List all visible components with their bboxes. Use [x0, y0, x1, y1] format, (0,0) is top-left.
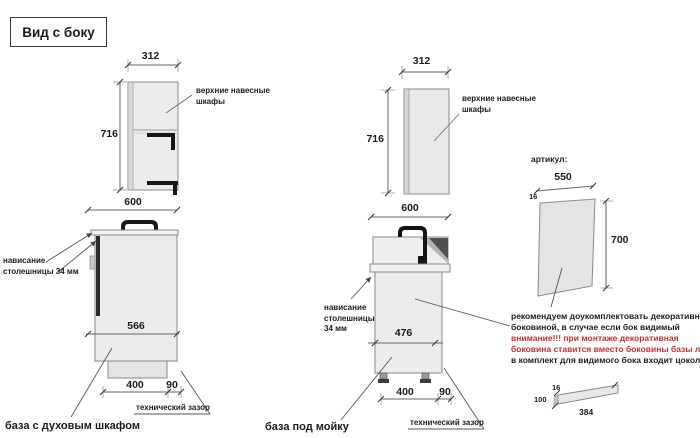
note-techgap-left: технический зазор: [136, 403, 212, 414]
dim-thickness-plinth: 16: [552, 383, 560, 392]
leg-left: [380, 373, 387, 379]
bracket-top: [171, 133, 175, 150]
dim-gap-base-sink: 90: [431, 386, 459, 398]
leader-caption-left: [71, 348, 112, 417]
bracket-top: [147, 133, 175, 137]
dim-depth-base-oven: 566: [106, 320, 166, 332]
oven-door-edge: [96, 236, 100, 316]
countertop-band: [370, 264, 450, 272]
dim-width-wall-left: 312: [123, 50, 178, 62]
note-overhang-left: нависание столешницы 34 мм: [3, 256, 83, 277]
dim-width-wall-mid: 312: [394, 55, 449, 67]
technical-drawing: [0, 0, 700, 438]
arrow-overhang-mid: [351, 277, 371, 299]
note-techgap-mid: технический зазор: [410, 418, 486, 429]
dim-height-wall-mid: 716: [360, 133, 384, 145]
dim-height-panel: 700: [611, 234, 629, 246]
plinth-recess: [108, 361, 167, 378]
label-wall-cabinet-mid: верхние навесные шкафы: [462, 94, 544, 115]
caption-base-oven: база с духовым шкафом: [5, 420, 140, 433]
dim-floor-base-oven: 400: [108, 379, 162, 391]
dim-width-base-oven: 600: [103, 196, 163, 208]
label-article: артикул:: [531, 154, 567, 165]
leg-right: [422, 373, 429, 379]
dim-gap-base-oven: 90: [158, 379, 186, 391]
wall-cabinet-mid-drawing: [404, 89, 449, 194]
leg-right-foot: [420, 379, 431, 383]
sink-cabinet-body: [375, 272, 442, 373]
handle-top: [123, 222, 156, 230]
drawing-canvas: Вид с боку 312 716 верхние навесные шкаф…: [0, 0, 700, 438]
oven-handle: [90, 256, 95, 269]
note-line-4-warning: боковина ставится вместо боковины базы л…: [511, 344, 700, 355]
page-title: Вид с боку: [22, 25, 94, 40]
note-line-2: боковиной, в случае если бок видимый: [511, 322, 680, 333]
dim-height-plinth: 100: [534, 395, 547, 404]
dim-width-panel: 550: [545, 171, 581, 183]
note-line-1: рекомендуем доукомплектовать декоративно…: [511, 311, 700, 322]
note-line-5: в комплект для видимого бока входит цоко…: [511, 355, 700, 366]
plinth-drawing: [552, 382, 618, 409]
leg-left-foot: [378, 379, 389, 383]
base-oven-drawing: [90, 222, 178, 378]
dim-thickness-panel: 16: [529, 192, 537, 201]
dim-floor-base-sink: 400: [378, 386, 432, 398]
wall-cabinet-left-drawing: [128, 82, 178, 195]
dim-length-plinth: 384: [579, 407, 593, 418]
dim-depth-base-sink: 476: [376, 327, 431, 339]
note-overhang-mid: нависание столешницы 34 мм: [324, 303, 378, 335]
bracket-bottom: [173, 181, 177, 195]
label-wall-cabinet-left: верхние навесные шкафы: [196, 86, 278, 107]
caption-base-sink: база под мойку: [265, 421, 349, 434]
note-line-3-warning: внимание!!! при монтаже декоративная: [511, 333, 679, 344]
dim-width-base-sink: 600: [385, 202, 435, 214]
dim-height-wall-left: 716: [94, 128, 118, 140]
title-box: Вид с боку: [10, 17, 107, 47]
decor-panel-drawing: [534, 183, 613, 307]
